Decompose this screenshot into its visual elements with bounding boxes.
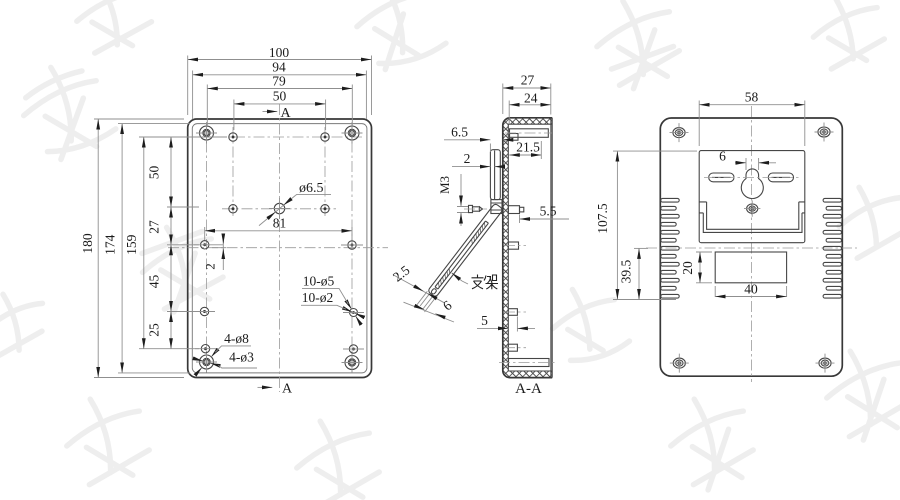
svg-text:45: 45 — [147, 275, 162, 289]
svg-text:27: 27 — [147, 220, 162, 234]
svg-text:174: 174 — [103, 234, 118, 255]
svg-text:A: A — [282, 382, 293, 397]
svg-text:2: 2 — [464, 151, 471, 166]
svg-text:58: 58 — [745, 90, 759, 105]
svg-text:159: 159 — [124, 234, 139, 255]
svg-text:100: 100 — [269, 45, 290, 60]
svg-text:50: 50 — [147, 166, 162, 180]
svg-text:39.5: 39.5 — [619, 259, 634, 283]
svg-text:M3: M3 — [437, 176, 452, 194]
svg-text:81: 81 — [273, 216, 287, 231]
svg-text:10-ø2: 10-ø2 — [302, 290, 334, 305]
svg-text:5: 5 — [481, 313, 488, 328]
svg-text:6: 6 — [719, 149, 726, 164]
svg-text:24: 24 — [524, 91, 538, 106]
svg-text:40: 40 — [744, 282, 758, 297]
svg-text:25: 25 — [147, 323, 162, 337]
svg-text:10-ø5: 10-ø5 — [303, 274, 335, 289]
svg-text:2: 2 — [203, 263, 218, 270]
svg-text:79: 79 — [272, 74, 286, 89]
svg-text:4-ø3: 4-ø3 — [229, 350, 254, 365]
svg-text:20: 20 — [680, 261, 695, 275]
svg-text:ø6.5: ø6.5 — [299, 181, 324, 196]
svg-text:50: 50 — [273, 89, 287, 104]
svg-text:180: 180 — [80, 233, 95, 254]
svg-text:A: A — [281, 106, 292, 121]
svg-text:4-ø8: 4-ø8 — [224, 331, 249, 346]
svg-text:107.5: 107.5 — [595, 203, 610, 234]
svg-text:94: 94 — [272, 60, 286, 75]
svg-text:5.5: 5.5 — [540, 204, 557, 219]
svg-text:27: 27 — [521, 73, 535, 88]
svg-text:A-A: A-A — [515, 381, 542, 397]
svg-text:6.5: 6.5 — [451, 125, 468, 140]
svg-text:21.5: 21.5 — [516, 140, 540, 155]
